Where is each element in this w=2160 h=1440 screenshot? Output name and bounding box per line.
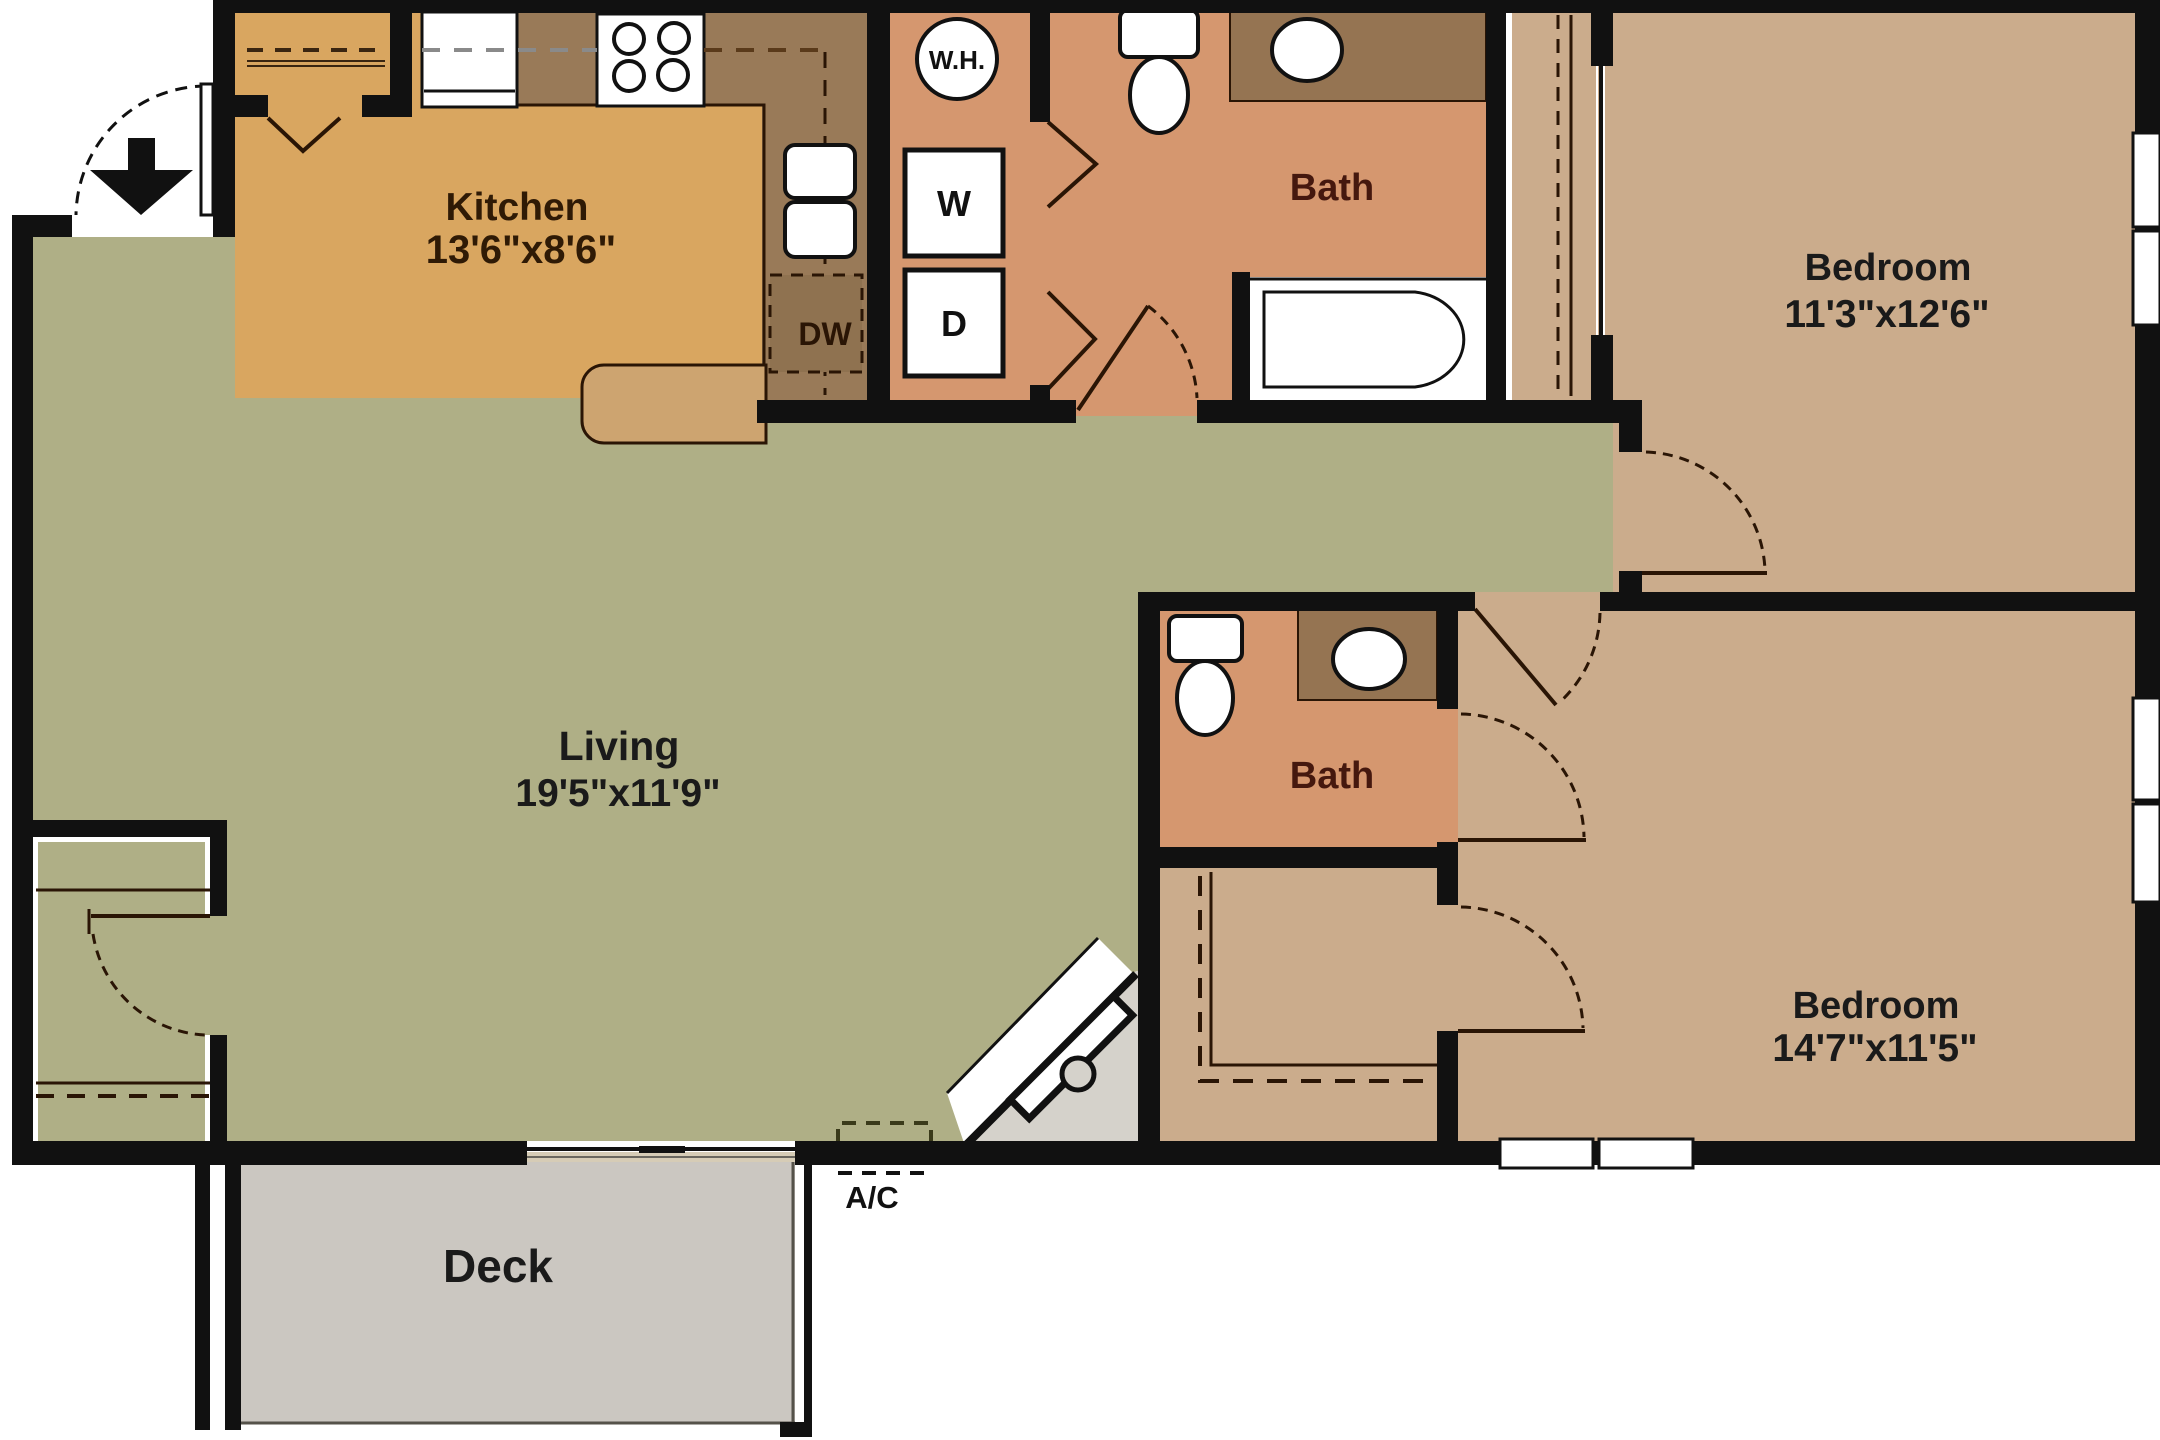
- svg-text:Living: Living: [559, 723, 680, 769]
- svg-text:Kitchen: Kitchen: [445, 186, 588, 229]
- svg-text:Bedroom: Bedroom: [1793, 985, 1960, 1027]
- svg-text:19'5"x11'9": 19'5"x11'9": [515, 772, 720, 815]
- svg-text:Deck: Deck: [443, 1240, 553, 1292]
- svg-text:14'7"x11'5": 14'7"x11'5": [1772, 1027, 1977, 1070]
- svg-text:Bedroom: Bedroom: [1805, 247, 1972, 289]
- svg-text:Bath: Bath: [1290, 755, 1374, 797]
- svg-text:W: W: [937, 183, 971, 224]
- svg-text:W.H.: W.H.: [929, 45, 985, 75]
- svg-text:D: D: [941, 303, 967, 344]
- svg-text:13'6"x8'6": 13'6"x8'6": [426, 228, 616, 272]
- svg-text:11'3"x12'6": 11'3"x12'6": [1784, 293, 1989, 336]
- svg-text:A/C: A/C: [845, 1180, 898, 1215]
- svg-text:DW: DW: [798, 316, 852, 352]
- svg-text:Bath: Bath: [1290, 167, 1374, 209]
